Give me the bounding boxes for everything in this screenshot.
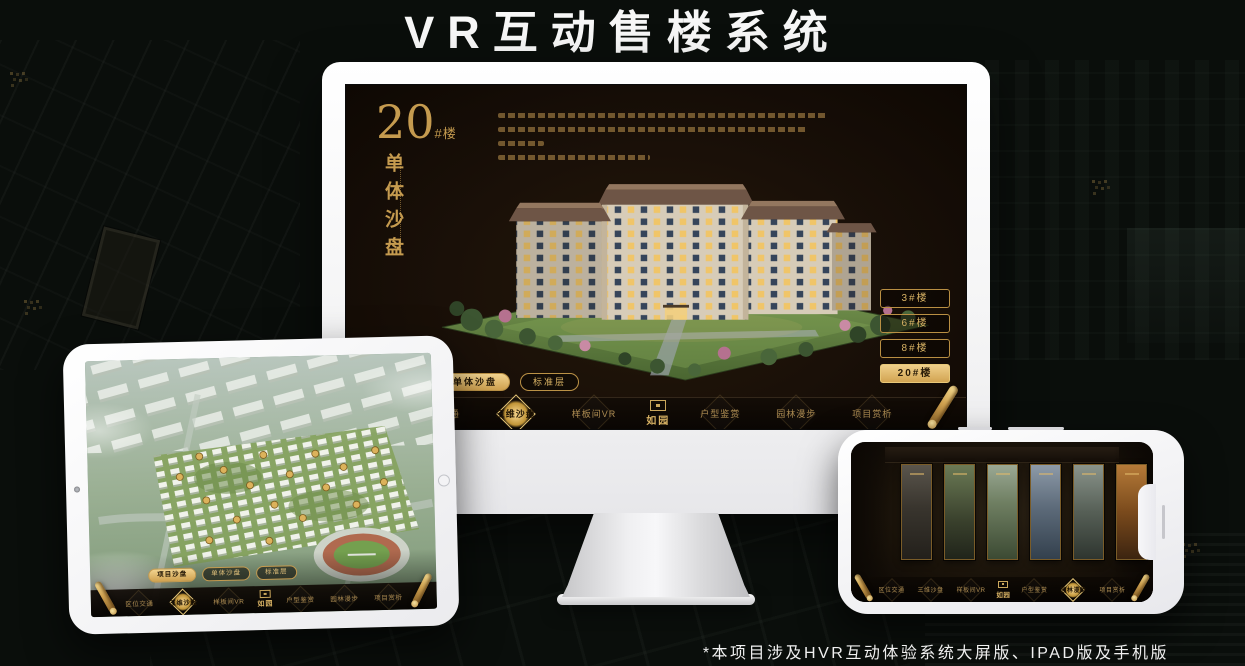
- gallery-panel-garden[interactable]: [987, 464, 1018, 560]
- tablet-home-button[interactable]: [438, 474, 450, 486]
- page-title: VR互动售楼系统: [0, 0, 1245, 61]
- gate-lintel: [885, 447, 1119, 463]
- floor-button-6[interactable]: 6#楼: [880, 314, 950, 333]
- monitor-stand: [562, 513, 750, 597]
- nav-item-project-gallery[interactable]: 项目赏析: [371, 590, 405, 603]
- logo-emblem-icon: [998, 581, 1008, 588]
- nav-item-model-room-vr[interactable]: 样板间VR: [955, 584, 988, 595]
- nav-logo[interactable]: 如园: [996, 581, 1010, 599]
- footnote: *本项目涉及HVR互动体验系统大屏版、IPAD版及手机版: [703, 639, 1169, 663]
- background-map-labels: [1092, 180, 1095, 183]
- nav-logo[interactable]: 如园: [646, 400, 670, 427]
- phone-screen: 区位交通 三维沙盘 样板间VR 如园 户型鉴赏 园林漫步 项目赏析: [851, 442, 1153, 602]
- logo-text: 如园: [996, 589, 1010, 599]
- nav-item-garden-walk[interactable]: 园林漫步: [1058, 584, 1088, 595]
- tab-standard-floor[interactable]: 标准层: [520, 373, 579, 391]
- phone-speaker-icon: [1162, 505, 1165, 539]
- nav-item-3d-sandbox[interactable]: 三维沙盘: [490, 405, 542, 422]
- gallery-panel-courtyard[interactable]: [901, 464, 932, 560]
- nav-logo[interactable]: 如园: [257, 590, 273, 609]
- nav-item-garden-walk[interactable]: 园林漫步: [327, 591, 361, 604]
- phone-notch: [1138, 484, 1156, 560]
- floor-button-20[interactable]: 20#楼: [880, 364, 950, 383]
- nav-item-garden-walk[interactable]: 园林漫步: [770, 405, 822, 422]
- gallery-panel-landscape[interactable]: [1073, 464, 1104, 560]
- tablet-screen: 项目沙盘 单体沙盘 标准层 区位交通 三维沙盘 样板间VR 如园 户型鉴赏 园林…: [85, 353, 437, 617]
- intro-line: [498, 127, 808, 132]
- logo-emblem-icon: [260, 590, 271, 598]
- building-number-unit: #楼: [435, 126, 457, 141]
- nav-item-model-room-vr[interactable]: 样板间VR: [566, 405, 623, 422]
- nav-item-model-room-vr[interactable]: 样板间VR: [210, 594, 247, 607]
- background-map-block: [0, 40, 300, 370]
- logo-text: 如园: [257, 599, 273, 609]
- phone-side-button: [1008, 427, 1064, 430]
- intro-line: [498, 113, 828, 118]
- tablet-tab-standard-floor[interactable]: 标准层: [256, 565, 297, 580]
- nav-item-location[interactable]: 区位交通: [122, 596, 156, 609]
- tablet-device: 项目沙盘 单体沙盘 标准层 区位交通 三维沙盘 样板间VR 如园 户型鉴赏 园林…: [63, 335, 460, 634]
- floor-button-3[interactable]: 3#楼: [880, 289, 950, 308]
- logo-text: 如园: [646, 412, 670, 427]
- nav-item-floorplans[interactable]: 户型鉴赏: [1019, 584, 1049, 595]
- building-3d-model[interactable]: [416, 141, 936, 387]
- tablet-tab-single-sandbox[interactable]: 单体沙盘: [202, 566, 250, 581]
- nav-item-floorplans[interactable]: 户型鉴赏: [694, 405, 746, 422]
- nav-item-project-gallery[interactable]: 项目赏析: [1097, 584, 1127, 595]
- building-subtitle: 单体沙盘: [380, 153, 407, 277]
- nav-item-3d-sandbox[interactable]: 三维沙盘: [916, 584, 946, 595]
- tablet-tab-project-sandbox[interactable]: 项目沙盘: [148, 568, 196, 583]
- nav-item-3d-sandbox[interactable]: 三维沙盘: [166, 595, 200, 608]
- gallery-panel-building[interactable]: [1030, 464, 1061, 560]
- logo-emblem-icon: [650, 400, 666, 411]
- background-photo: [1127, 228, 1245, 343]
- floor-button-8[interactable]: 8#楼: [880, 339, 950, 358]
- phone-side-button: [958, 427, 992, 430]
- floor-button-group: 3#楼 6#楼 8#楼 20#楼: [880, 289, 950, 383]
- gallery-panels: [901, 464, 1147, 560]
- nav-item-floorplans[interactable]: 户型鉴赏: [283, 592, 317, 605]
- background-map-labels: [10, 72, 13, 75]
- subtitle-rule: [400, 157, 401, 253]
- nav-item-project-gallery[interactable]: 项目赏析: [846, 405, 898, 422]
- background-map-labels: [24, 300, 27, 303]
- gallery-panel-interior-green[interactable]: [944, 464, 975, 560]
- nav-item-location[interactable]: 区位交通: [877, 584, 907, 595]
- phone-bottom-nav-bar: 区位交通 三维沙盘 样板间VR 如园 户型鉴赏 园林漫步 项目赏析: [851, 577, 1153, 602]
- tablet-camera-icon: [74, 486, 80, 492]
- phone-device: 区位交通 三维沙盘 样板间VR 如园 户型鉴赏 园林漫步 项目赏析: [838, 430, 1184, 614]
